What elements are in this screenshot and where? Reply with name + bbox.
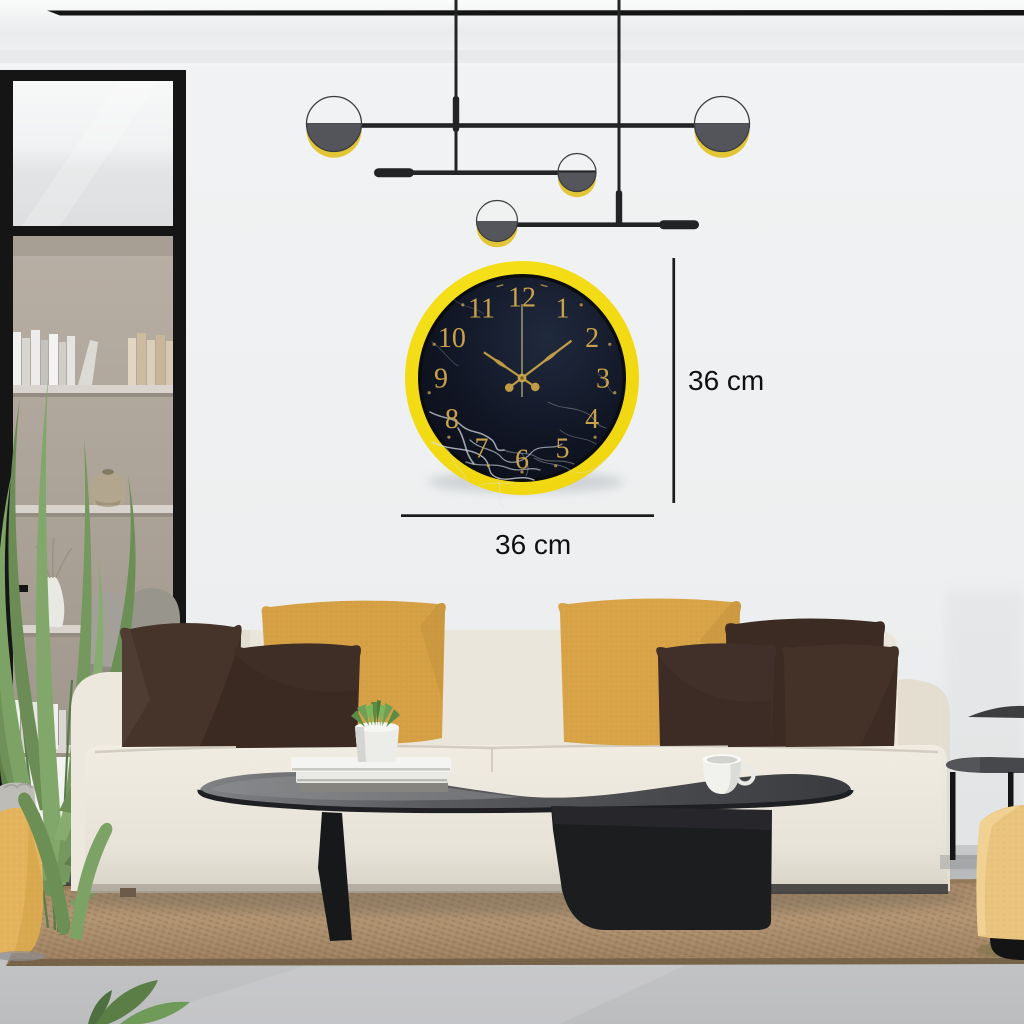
svg-text:4: 4 [585,404,599,435]
svg-text:9: 9 [434,364,448,395]
svg-text:8: 8 [445,404,459,435]
svg-text:5: 5 [556,434,570,465]
svg-text:2: 2 [585,323,599,354]
svg-text:11: 11 [468,293,495,324]
svg-text:1: 1 [556,293,570,324]
svg-text:36 cm: 36 cm [688,365,764,396]
svg-text:3: 3 [596,364,610,395]
svg-text:7: 7 [475,434,489,465]
svg-text:36 cm: 36 cm [495,529,571,560]
svg-text:10: 10 [438,323,466,354]
